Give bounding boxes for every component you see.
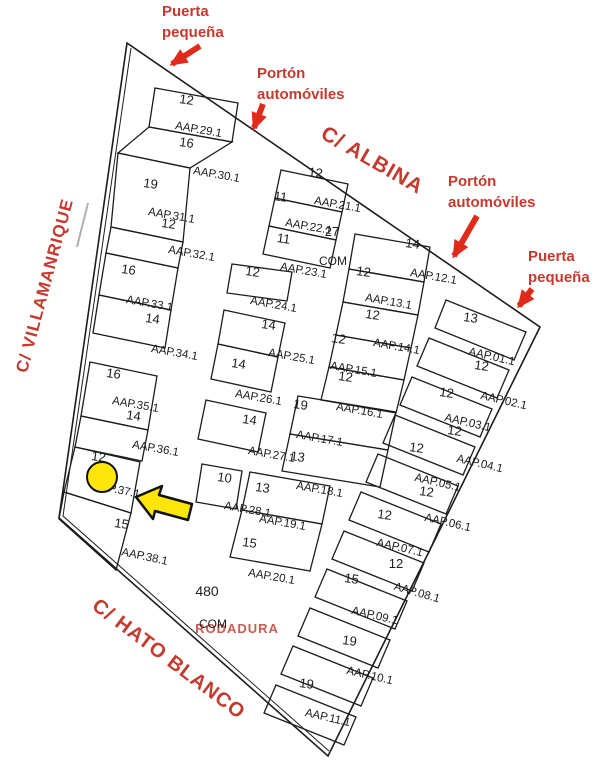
parcel-size-AAP.14.1: 12 [364,306,380,323]
parcel-size-AAP.02.1: 12 [473,357,489,374]
parcel-size-AAP.33.1: 16 [120,261,136,278]
parcel-size-AAP.24.1: 12 [244,263,260,280]
parcel-size-AAP.23.1: 11 [276,230,291,247]
parcel-size-AAP.15.1: 12 [330,330,346,347]
gate-label-0: Puerta [162,3,209,20]
parcel-size-AAP.26.1: 14 [230,355,246,372]
gate-label-2: Portón [448,173,496,190]
parcel-size-AAP.30.1: 16 [178,134,194,151]
parcel-size-AAP.11.1: 19 [298,675,314,692]
parcel-size-AAP.18.1: 13 [289,448,305,465]
parcel-size-AAP.38.1: 15 [113,515,129,532]
parcel-size-AAP.08.1: 15 [343,570,359,587]
annotation-27: 27 [325,224,339,239]
gate-label-3: Puerta [528,248,575,265]
gate-label-1: Portón [257,65,305,82]
parcel-size-AAP.25.1: 14 [260,316,276,333]
annotation-12: 12 [389,556,403,571]
annotation-480: 480 [195,583,219,599]
parcel-size-AAP.03.1: 12 [438,384,454,401]
parcel-size-AAP.06.1: 12 [418,483,434,500]
parcel-size-AAP.17.1: 19 [292,396,308,413]
parcel-size-AAP.19.1: 13 [254,479,270,496]
parcel-size-AAP.22.1: 11 [273,188,288,205]
parcel-size-AAP.35.1: 16 [105,365,121,382]
parcel-size-AAP.04.1: 12 [446,422,462,439]
parcel-size-AAP.01.1: 13 [462,309,478,326]
parcel-size-AAP.05.1: 12 [408,439,424,456]
plan-drawing: 12AAP.29.116AAP.30.119AAP.31.112AAP.32.1… [0,0,612,766]
parcel-size-AAP.34.1: 14 [144,310,160,327]
highlight-circle [87,462,117,492]
parcel-size-AAP.32.1: 12 [160,215,176,232]
parcel-size-AAP.07.1: 12 [376,506,392,523]
parcel-size-AAP.12.1: 14 [404,235,420,252]
parcel-size-AAP.36.1: 14 [125,407,141,424]
parcel-size-AAP.21.1: 12 [307,164,323,181]
gate-label-2: automóviles [448,194,536,211]
parcel-size-AAP.20.1: 15 [241,534,257,551]
parcel-size-AAP.13.1: 12 [355,263,371,280]
parcel-size-AAP.10.1: 19 [341,632,357,649]
gate-label-3: pequeña [528,269,590,286]
annotation-com: COM [199,617,227,631]
parcel-size-AAP.16.1: 12 [337,368,353,385]
parcel-size-AAP.27.1: 14 [241,411,257,428]
site-plan-map: 12AAP.29.116AAP.30.119AAP.31.112AAP.32.1… [0,0,612,766]
parcel-size-AAP.28.1: 10 [216,469,232,486]
gate-label-1: automóviles [257,86,345,103]
parcel-size-AAP.31.1: 19 [142,175,158,192]
gate-label-0: pequeña [162,24,224,41]
parcel-size-AAP.29.1: 12 [178,91,194,108]
annotation-com: COM [319,254,347,268]
